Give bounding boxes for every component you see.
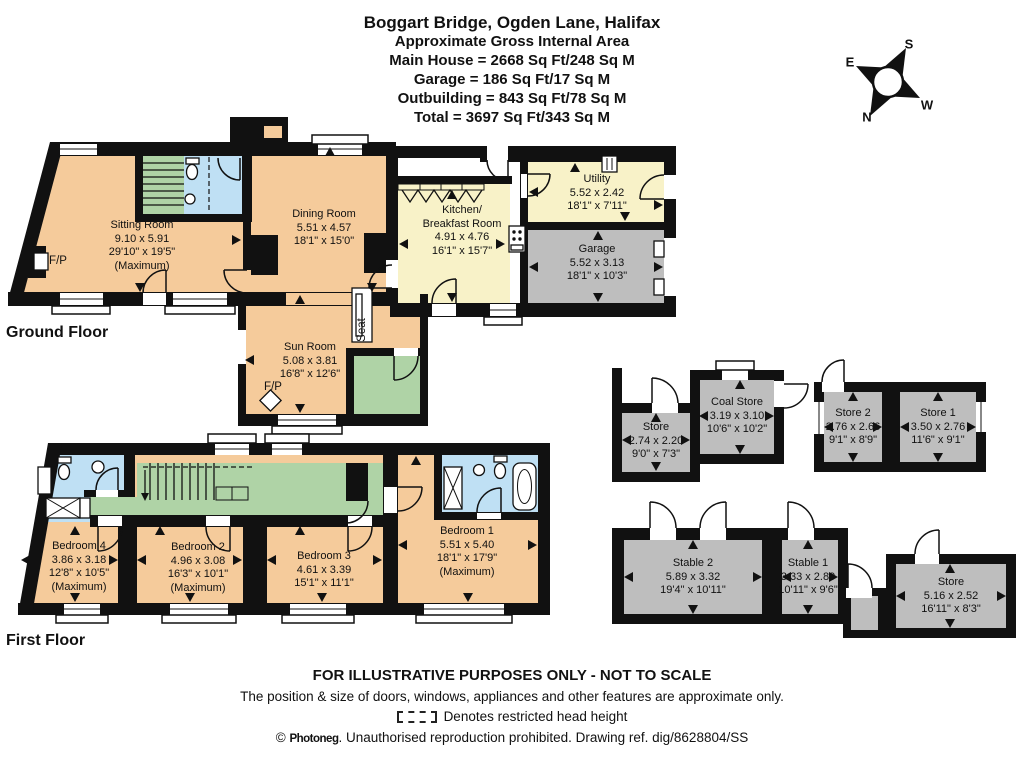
room-label-bedroom-1: Bedroom 15.51 x 5.40 18'1" x 17'9"(Maxim… (407, 525, 527, 579)
shower-icon (444, 467, 462, 509)
brand-name: Photoneg (289, 733, 338, 745)
page-title: Boggart Bridge, Ogden Lane, Halifax (0, 13, 1024, 32)
compass-s-label: S (905, 37, 914, 52)
room-label-bedroom-4: Bedroom 43.86 x 3.18 12'8" x 10'5"(Maxim… (27, 540, 131, 594)
copyright-line: © Photoneg. Unauthorised reproduction pr… (0, 727, 1024, 750)
bath-icon (513, 463, 536, 510)
toilet-icon (58, 457, 71, 480)
footer: FOR ILLUSTRATIVE PURPOSES ONLY - NOT TO … (0, 665, 1024, 750)
first-floor-label: First Floor (6, 632, 85, 650)
disclaimer-title: FOR ILLUSTRATIVE PURPOSES ONLY - NOT TO … (0, 665, 1024, 687)
basin-icon (92, 461, 104, 473)
room-label-sun-room: Sun Room5.08 x 3.81 16'8" x 12'6" (255, 341, 365, 382)
room-label-stable-1: Stable 13.33 x 2.89 10'11" x 9'6" (761, 557, 856, 598)
seat-label: Seat (356, 318, 368, 342)
room-label-garage: Garage5.52 x 3.13 18'1" x 10'3" (542, 243, 652, 284)
fireplace-label: F/P (264, 381, 282, 393)
room-label-bedroom-3: Bedroom 34.61 x 3.39 15'1" x 11'1" (269, 550, 379, 591)
room-label-coal-store: Coal Store3.19 x 3.10 10'6" x 10'2" (690, 396, 785, 437)
boiler-icon (602, 156, 617, 172)
floorplan-page: Boggart Bridge, Ogden Lane, Halifax Appr… (0, 0, 1024, 768)
room-label-store-1: Store 13.50 x 2.76 11'6" x 9'1" (891, 407, 986, 448)
compass-e-label: E (846, 55, 855, 70)
room-label-dining-room: Dining Room5.51 x 4.57 18'1" x 15'0" (269, 208, 379, 249)
disclaimer-text: The position & size of doors, windows, a… (0, 687, 1024, 707)
room-label-utility: Utility5.52 x 2.42 18'1" x 7'11" (542, 173, 652, 214)
room-label-store-2: Store 22.76 x 2.66 9'1" x 8'9" (811, 407, 896, 448)
fireplace-icon (28, 246, 48, 278)
basin-icon (185, 194, 195, 204)
room-label-sitting-room: Sitting Room9.10 x 5.91 29'10" x 19'5"(M… (82, 219, 202, 273)
fireplace-label: F/P (49, 255, 67, 267)
chimney-breast (346, 463, 368, 501)
toilet-icon (494, 456, 507, 479)
restricted-head-height-symbol (397, 711, 437, 723)
room-label-bedroom-2: Bedroom 24.96 x 3.08 16'3" x 10'1"(Maxim… (143, 541, 253, 595)
basin-icon (474, 465, 485, 476)
room-label-kitchen: Kitchen/Breakfast Room 4.91 x 4.7616'1" … (407, 204, 517, 258)
legend-line: Denotes restricted head height (0, 707, 1024, 727)
room-label-store-nw: Store2.74 x 2.20 9'0" x 7'3" (611, 421, 701, 462)
shower-icon (46, 498, 90, 518)
compass-w-label: W (921, 98, 933, 113)
room-label-stable-2: Stable 25.89 x 3.32 19'4" x 10'11" (638, 557, 748, 598)
toilet-icon (186, 158, 199, 180)
room-label-store-e: Store5.16 x 2.52 16'11" x 8'3" (899, 576, 1004, 617)
ground-floor-label: Ground Floor (6, 324, 108, 342)
compass-n-label: N (862, 110, 871, 125)
